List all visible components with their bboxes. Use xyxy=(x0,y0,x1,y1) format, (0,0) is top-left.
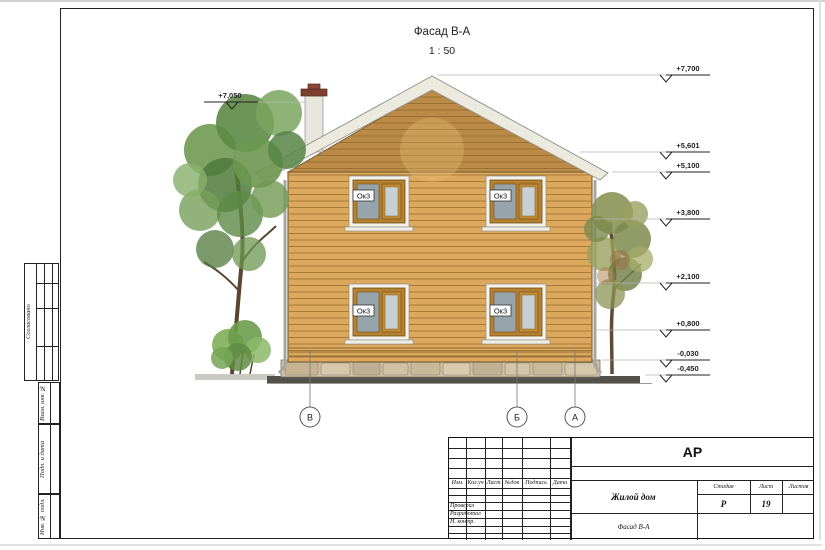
axis-bubble-a: А xyxy=(572,413,578,423)
svg-text:+7,700: +7,700 xyxy=(676,64,699,73)
window-label: Ок3 xyxy=(357,307,370,316)
bush-left xyxy=(211,320,271,374)
tb-row-proveril: Проверил xyxy=(450,502,486,510)
foundation xyxy=(281,360,600,377)
svg-text:+7,050: +7,050 xyxy=(218,91,241,100)
elevation-mark: +5,100 xyxy=(612,161,710,179)
svg-text:+5,100: +5,100 xyxy=(676,161,699,170)
tb-project-name: Жилой дом xyxy=(570,480,697,513)
axis-bubble-b: Б xyxy=(514,413,520,423)
axis-bubble-v: В xyxy=(307,413,313,423)
svg-text:+0,800: +0,800 xyxy=(676,319,699,328)
window-lower-left: Ок3 xyxy=(345,284,413,344)
svg-text:-0,030: -0,030 xyxy=(677,349,698,358)
tb-doc-code: АР xyxy=(570,438,815,466)
margin-inv-original-cell: Инв. № подл. xyxy=(38,494,60,539)
tb-sheet-value: 19 xyxy=(750,494,782,513)
tb-sheets-label: Листов xyxy=(782,480,815,494)
window-label: Ок3 xyxy=(357,192,370,201)
margin-approved-label: Согласовано xyxy=(25,264,32,380)
tb-col-koluch: Кол.уч xyxy=(466,478,485,488)
tb-stage-label: Стадия xyxy=(697,480,750,494)
window-label: Ок3 xyxy=(494,307,507,316)
margin-sign-date-label: Подп. и дата xyxy=(39,425,46,493)
tb-col-data: Дата xyxy=(550,478,570,488)
window-upper-right: Ок3 xyxy=(482,176,550,231)
svg-text:+2,100: +2,100 xyxy=(676,272,699,281)
tb-row-razrabotal: Разработал xyxy=(450,510,490,518)
window-label: Ок3 xyxy=(494,192,507,201)
elevation-mark: +5,601 xyxy=(580,141,710,159)
drawing-sheet: Фасад В-А 1 : 50 xyxy=(0,0,825,550)
margin-inv-original-label: Инв. № подл. xyxy=(39,495,46,538)
elevation-mark: +7,700 xyxy=(437,64,710,82)
svg-text:+3,800: +3,800 xyxy=(676,208,699,217)
tb-drawing-name: Фасад В-А xyxy=(570,513,697,540)
tb-col-podpis: Подпись xyxy=(522,478,550,488)
margin-substitute-inv-cell: Взам. инв. № xyxy=(38,382,60,424)
tb-sheet-label: Лист xyxy=(750,480,782,494)
window-lower-right: Ок3 xyxy=(482,284,550,344)
facade-wall xyxy=(288,172,592,362)
tb-col-izm: Изм. xyxy=(449,478,466,488)
window-upper-left: Ок3 xyxy=(345,176,413,231)
elevation-mark: -0,450 xyxy=(645,364,710,382)
margin-approval-block: Согласовано xyxy=(24,263,59,381)
svg-text:+5,601: +5,601 xyxy=(676,141,699,150)
title-block: Изм. Кол.уч Лист №док Подпись Дата Прове… xyxy=(448,437,814,539)
tb-stage-value: Р xyxy=(697,494,750,513)
view-scale: 1 : 50 xyxy=(429,45,455,57)
margin-sign-date-cell: Подп. и дата xyxy=(38,424,60,494)
view-title: Фасад В-А xyxy=(414,26,471,38)
tb-col-list: Лист xyxy=(485,478,502,488)
margin-substitute-inv-label: Взам. инв. № xyxy=(39,383,46,423)
tb-col-ndok: №док xyxy=(502,478,522,488)
tb-row-nkontr: Н. контр. xyxy=(450,518,486,526)
svg-text:-0,450: -0,450 xyxy=(677,364,698,373)
